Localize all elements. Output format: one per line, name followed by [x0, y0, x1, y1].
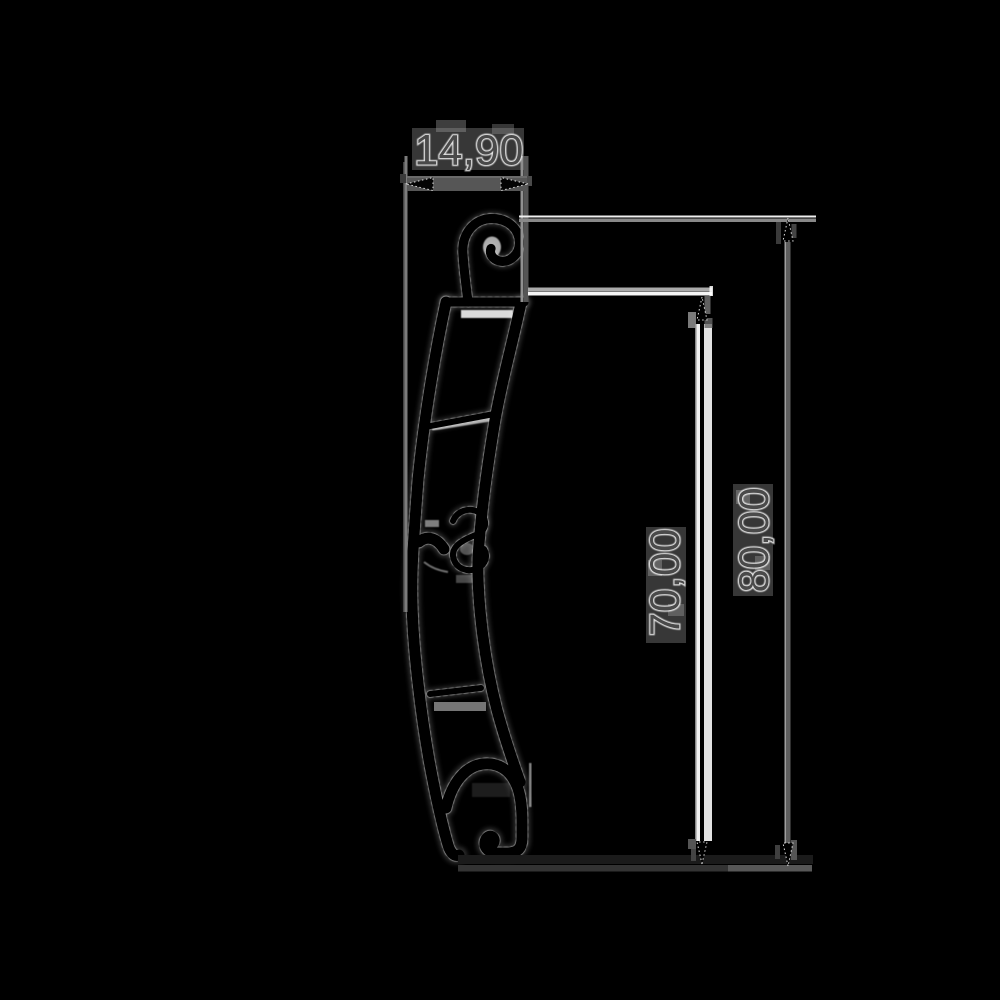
svg-text:14,90: 14,90 — [414, 127, 524, 175]
svg-text:70,00: 70,00 — [641, 528, 688, 636]
svg-text:80,00: 80,00 — [730, 487, 777, 592]
